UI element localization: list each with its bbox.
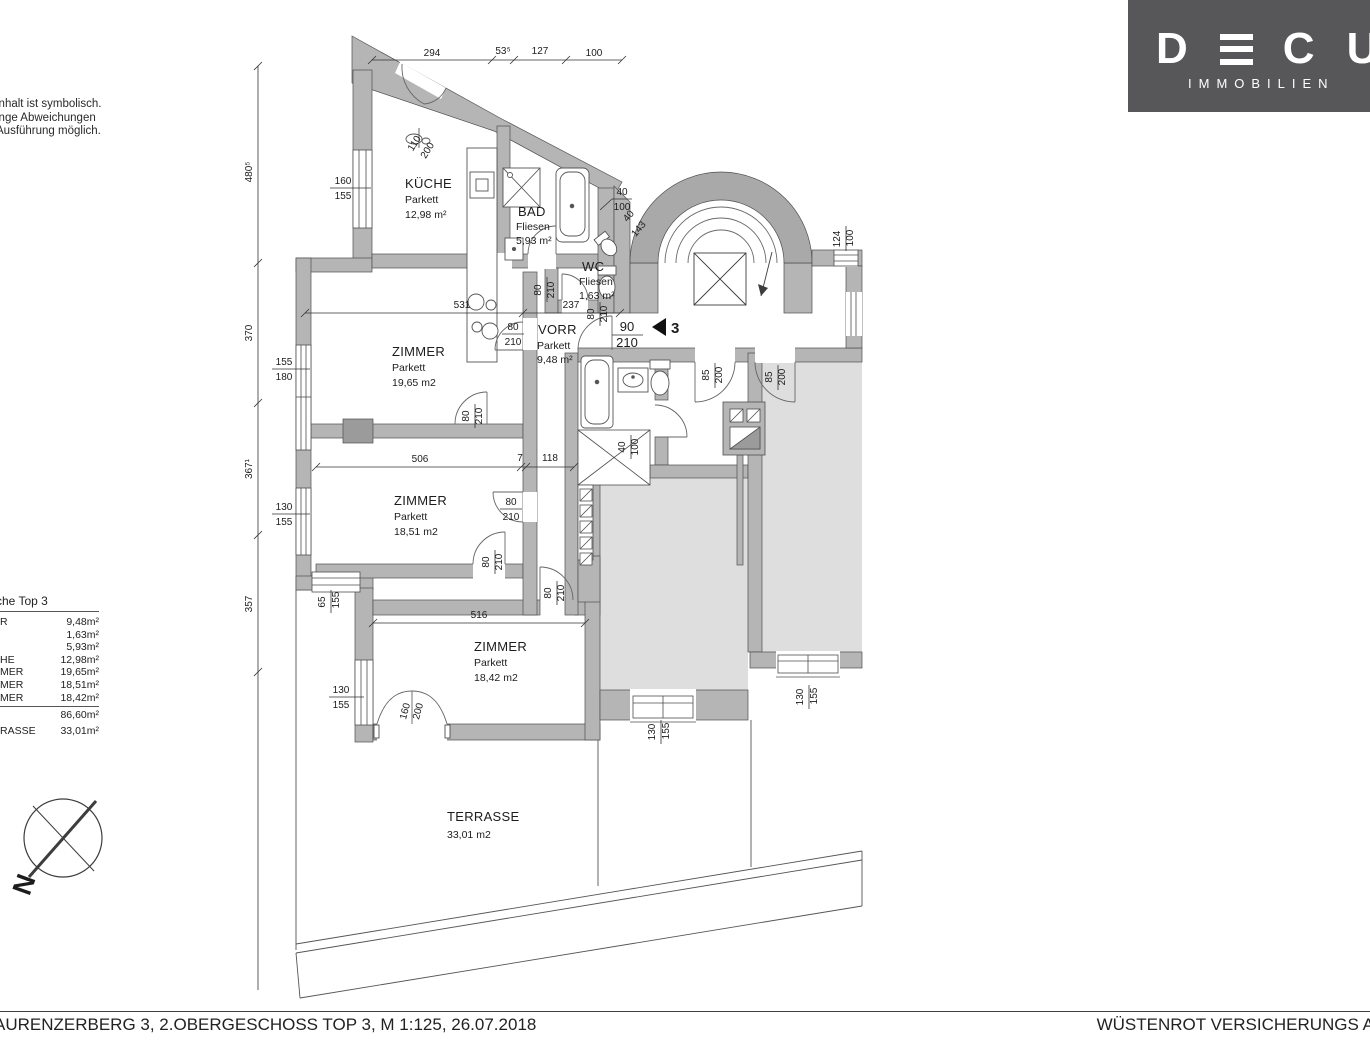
- dim-100: 100: [586, 48, 603, 59]
- svg-text:12,98 m²: 12,98 m²: [405, 209, 447, 221]
- wall-bath-east-b: [655, 437, 668, 465]
- svg-text:Fliesen: Fliesen: [579, 276, 613, 288]
- chimney-block: [343, 419, 373, 443]
- footer-divider: [0, 1011, 1370, 1012]
- svg-text:80: 80: [461, 410, 472, 422]
- dim-127: 127: [532, 46, 549, 57]
- window-roomB: [776, 655, 840, 677]
- svg-text:160: 160: [335, 176, 352, 187]
- stair-arch-band: [630, 172, 812, 263]
- table-row: HE12,98m²: [0, 654, 99, 667]
- footer-company: WÜSTENROT VERSICHERUNGS A: [1097, 1015, 1370, 1035]
- svg-text:210: 210: [505, 337, 522, 348]
- svg-text:118: 118: [542, 453, 558, 464]
- logo-letter-e-icon: [1220, 34, 1253, 65]
- neighbor-toilet-icon: [650, 360, 670, 395]
- floorplan-page: { "logo": {"letter_d":"D","letter_c":"C"…: [0, 0, 1370, 1060]
- svg-text:18,51 m2: 18,51 m2: [394, 526, 438, 538]
- room-terrasse: TERRASSE: [447, 809, 520, 824]
- svg-text:Parkett: Parkett: [392, 362, 425, 374]
- dim-entrance-90: 90: [620, 319, 634, 334]
- disclaimer-note: inhalt ist symbolisch. inge Abweichungen…: [0, 98, 101, 139]
- svg-text:80: 80: [507, 322, 519, 333]
- svg-text:Parkett: Parkett: [394, 511, 427, 523]
- svg-text:155: 155: [333, 700, 350, 711]
- window-z3: [355, 660, 373, 725]
- svg-text:155: 155: [276, 357, 293, 368]
- room-vorr: VORR: [538, 322, 577, 337]
- window-stair: [834, 250, 858, 266]
- unit-number: 3: [671, 320, 679, 337]
- pillar-block: [723, 402, 765, 455]
- decus-logo-letters: D C U: [1156, 24, 1370, 74]
- svg-text:130: 130: [333, 685, 350, 696]
- svg-text:85: 85: [764, 371, 775, 383]
- wall-roomAB-div: [748, 353, 762, 652]
- svg-text:155: 155: [661, 722, 672, 739]
- svg-text:180: 180: [276, 372, 293, 383]
- table-row: MER18,42m²: [0, 692, 99, 705]
- svg-text:210: 210: [474, 407, 485, 424]
- svg-text:210: 210: [503, 512, 520, 523]
- svg-text:155: 155: [335, 191, 352, 202]
- table-row: R9,48m²: [0, 616, 99, 629]
- svg-text:210: 210: [599, 305, 610, 322]
- svg-text:Parkett: Parkett: [537, 340, 570, 352]
- logo-letter-c: C: [1283, 24, 1317, 74]
- floor-plan-drawing: 294 53⁵ 127 100 480⁵ 370 367¹ 357 531 23…: [0, 0, 1370, 1060]
- room-wc: WC: [582, 259, 604, 274]
- svg-text:531: 531: [454, 300, 471, 311]
- neighbor-bathtub-icon: [581, 356, 613, 428]
- svg-text:506: 506: [412, 454, 429, 465]
- svg-text:80: 80: [533, 284, 544, 296]
- svg-text:516: 516: [471, 610, 488, 621]
- svg-text:40: 40: [616, 187, 628, 198]
- logo-letter-u: U: [1347, 24, 1370, 74]
- dim-294: 294: [424, 48, 441, 59]
- svg-text:130: 130: [795, 688, 806, 705]
- window-z2: [296, 488, 311, 555]
- svg-text:480⁵: 480⁵: [244, 162, 255, 183]
- svg-text:200: 200: [777, 368, 788, 385]
- svg-text:237: 237: [563, 300, 580, 311]
- bathtub-icon: [556, 168, 589, 242]
- svg-text:Fliesen: Fliesen: [516, 221, 550, 233]
- svg-text:210: 210: [546, 281, 557, 298]
- area-table: che Top 3 R9,48m² 1,63m² 5,93m² HE12,98m…: [0, 594, 99, 737]
- area-table-total-rule: [0, 706, 99, 707]
- shower-icon: [503, 168, 540, 207]
- svg-text:9,48 m²: 9,48 m²: [537, 354, 573, 366]
- svg-text:Parkett: Parkett: [474, 657, 507, 669]
- logo-subtitle: IMMOBILIEN: [1188, 76, 1335, 91]
- wall-corridor-east: [565, 353, 578, 615]
- svg-text:Parkett: Parkett: [405, 194, 438, 206]
- svg-text:130: 130: [647, 723, 658, 740]
- svg-text:200: 200: [714, 366, 725, 383]
- compass-north-label: N: [7, 870, 42, 899]
- room-bad: BAD: [518, 204, 546, 219]
- footer-address: AURENZERBERG 3, 2.OBERGESCHOSS TOP 3, M …: [0, 1015, 536, 1035]
- svg-text:7: 7: [517, 453, 523, 464]
- room-zimmer3: ZIMMER: [474, 639, 527, 654]
- svg-text:80: 80: [586, 308, 597, 320]
- svg-text:367¹: 367¹: [244, 458, 255, 479]
- table-row: 5,93m²: [0, 641, 99, 654]
- svg-text:1,63 m²: 1,63 m²: [579, 290, 615, 302]
- room-zimmer1: ZIMMER: [392, 344, 445, 359]
- dim-53: 53⁵: [495, 46, 510, 57]
- svg-text:85: 85: [701, 369, 712, 381]
- elevator-icon: [694, 253, 746, 305]
- room-kueche: KÜCHE: [405, 176, 452, 191]
- svg-text:65: 65: [317, 596, 328, 608]
- decus-logo: D C U IMMOBILIEN: [1128, 0, 1370, 112]
- wall-thin-stem: [737, 455, 743, 565]
- table-row: 1,63m²: [0, 629, 99, 642]
- area-table-rule: [0, 611, 99, 612]
- wall-roomA-north: [650, 465, 748, 478]
- svg-text:357: 357: [244, 595, 255, 612]
- room-zimmer2: ZIMMER: [394, 493, 447, 508]
- logo-letter-d: D: [1156, 24, 1190, 74]
- dim-entrance-210: 210: [616, 335, 638, 350]
- svg-text:80: 80: [543, 587, 554, 599]
- svg-text:210: 210: [556, 584, 567, 601]
- table-row: MER19,65m²: [0, 666, 99, 679]
- svg-text:200: 200: [411, 701, 426, 720]
- svg-text:33,01 m2: 33,01 m2: [447, 829, 491, 841]
- svg-text:100: 100: [630, 438, 641, 455]
- svg-text:100: 100: [845, 229, 856, 246]
- window-z1: [296, 345, 311, 450]
- unit-entrance-marker: 3: [652, 318, 679, 337]
- svg-text:18,42 m2: 18,42 m2: [474, 672, 518, 684]
- svg-text:210: 210: [494, 553, 505, 570]
- svg-text:40: 40: [617, 441, 628, 453]
- svg-text:80: 80: [481, 556, 492, 568]
- entrance-arrow-icon: [652, 318, 666, 336]
- neighbor-basin-icon: [618, 368, 648, 392]
- area-table-title: che Top 3: [0, 594, 99, 608]
- window-roomA: [630, 696, 696, 722]
- table-row: MER18,51m²: [0, 679, 99, 692]
- stairwell: [665, 207, 777, 305]
- kitchen-counter: [467, 148, 498, 362]
- lightwell-shaft: [578, 430, 650, 485]
- svg-text:155: 155: [809, 687, 820, 704]
- table-total-row: 86,60m²: [0, 709, 99, 722]
- window-kitchen: [353, 150, 372, 228]
- svg-text:124: 124: [832, 230, 843, 247]
- svg-text:5,93 m²: 5,93 m²: [516, 235, 552, 247]
- compass-icon: N: [7, 799, 102, 899]
- svg-text:370: 370: [244, 324, 255, 341]
- svg-text:130: 130: [276, 502, 293, 513]
- window-small-65: [312, 572, 360, 592]
- stair-direction-arrow: [758, 252, 772, 296]
- svg-text:19,65 m2: 19,65 m2: [392, 377, 436, 389]
- svg-text:155: 155: [331, 591, 342, 608]
- oven-icon: [470, 172, 494, 198]
- table-terrace-row: RASSE33,01m²: [0, 725, 99, 738]
- svg-text:80: 80: [505, 497, 517, 508]
- svg-text:155: 155: [276, 517, 293, 528]
- hatch-squares: [580, 489, 592, 565]
